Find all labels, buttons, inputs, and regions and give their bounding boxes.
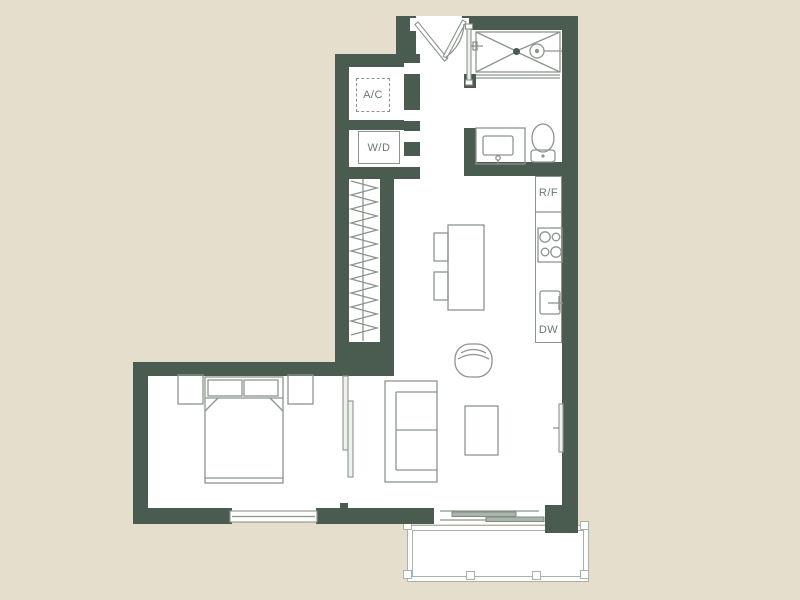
bedroom-sliding-door (343, 376, 353, 477)
wall-window-marker (559, 404, 563, 452)
coffee-table (465, 406, 498, 455)
nightstand (288, 375, 313, 404)
pillow (244, 380, 278, 396)
bathroom-fixtures (476, 124, 555, 165)
kitchen-fixtures (535, 212, 563, 314)
pillow (208, 380, 242, 396)
sofa (385, 381, 437, 482)
bathroom-sink (483, 136, 513, 155)
living-room-furniture (385, 344, 563, 482)
closet-hangers (351, 179, 377, 341)
wd-label: W/D (358, 131, 400, 164)
toilet (532, 124, 554, 152)
dw-label: DW (533, 322, 564, 338)
kitchen-island (434, 225, 484, 310)
shower-drain (513, 48, 520, 55)
nightstand (178, 375, 203, 404)
bar-stool (434, 272, 448, 300)
bedroom-window (230, 511, 317, 522)
fixtures-layer (0, 0, 800, 600)
balcony-sliding-door (440, 511, 544, 522)
shower-glass-door (467, 26, 471, 84)
bar-stool (434, 233, 448, 261)
bedroom-furniture (178, 375, 313, 483)
ac-label: A/C (356, 78, 390, 112)
floor-plan: A/C W/D R/F DW (0, 0, 800, 600)
shower (466, 24, 563, 85)
rf-label: R/F (533, 185, 564, 201)
entry-door (415, 20, 466, 61)
